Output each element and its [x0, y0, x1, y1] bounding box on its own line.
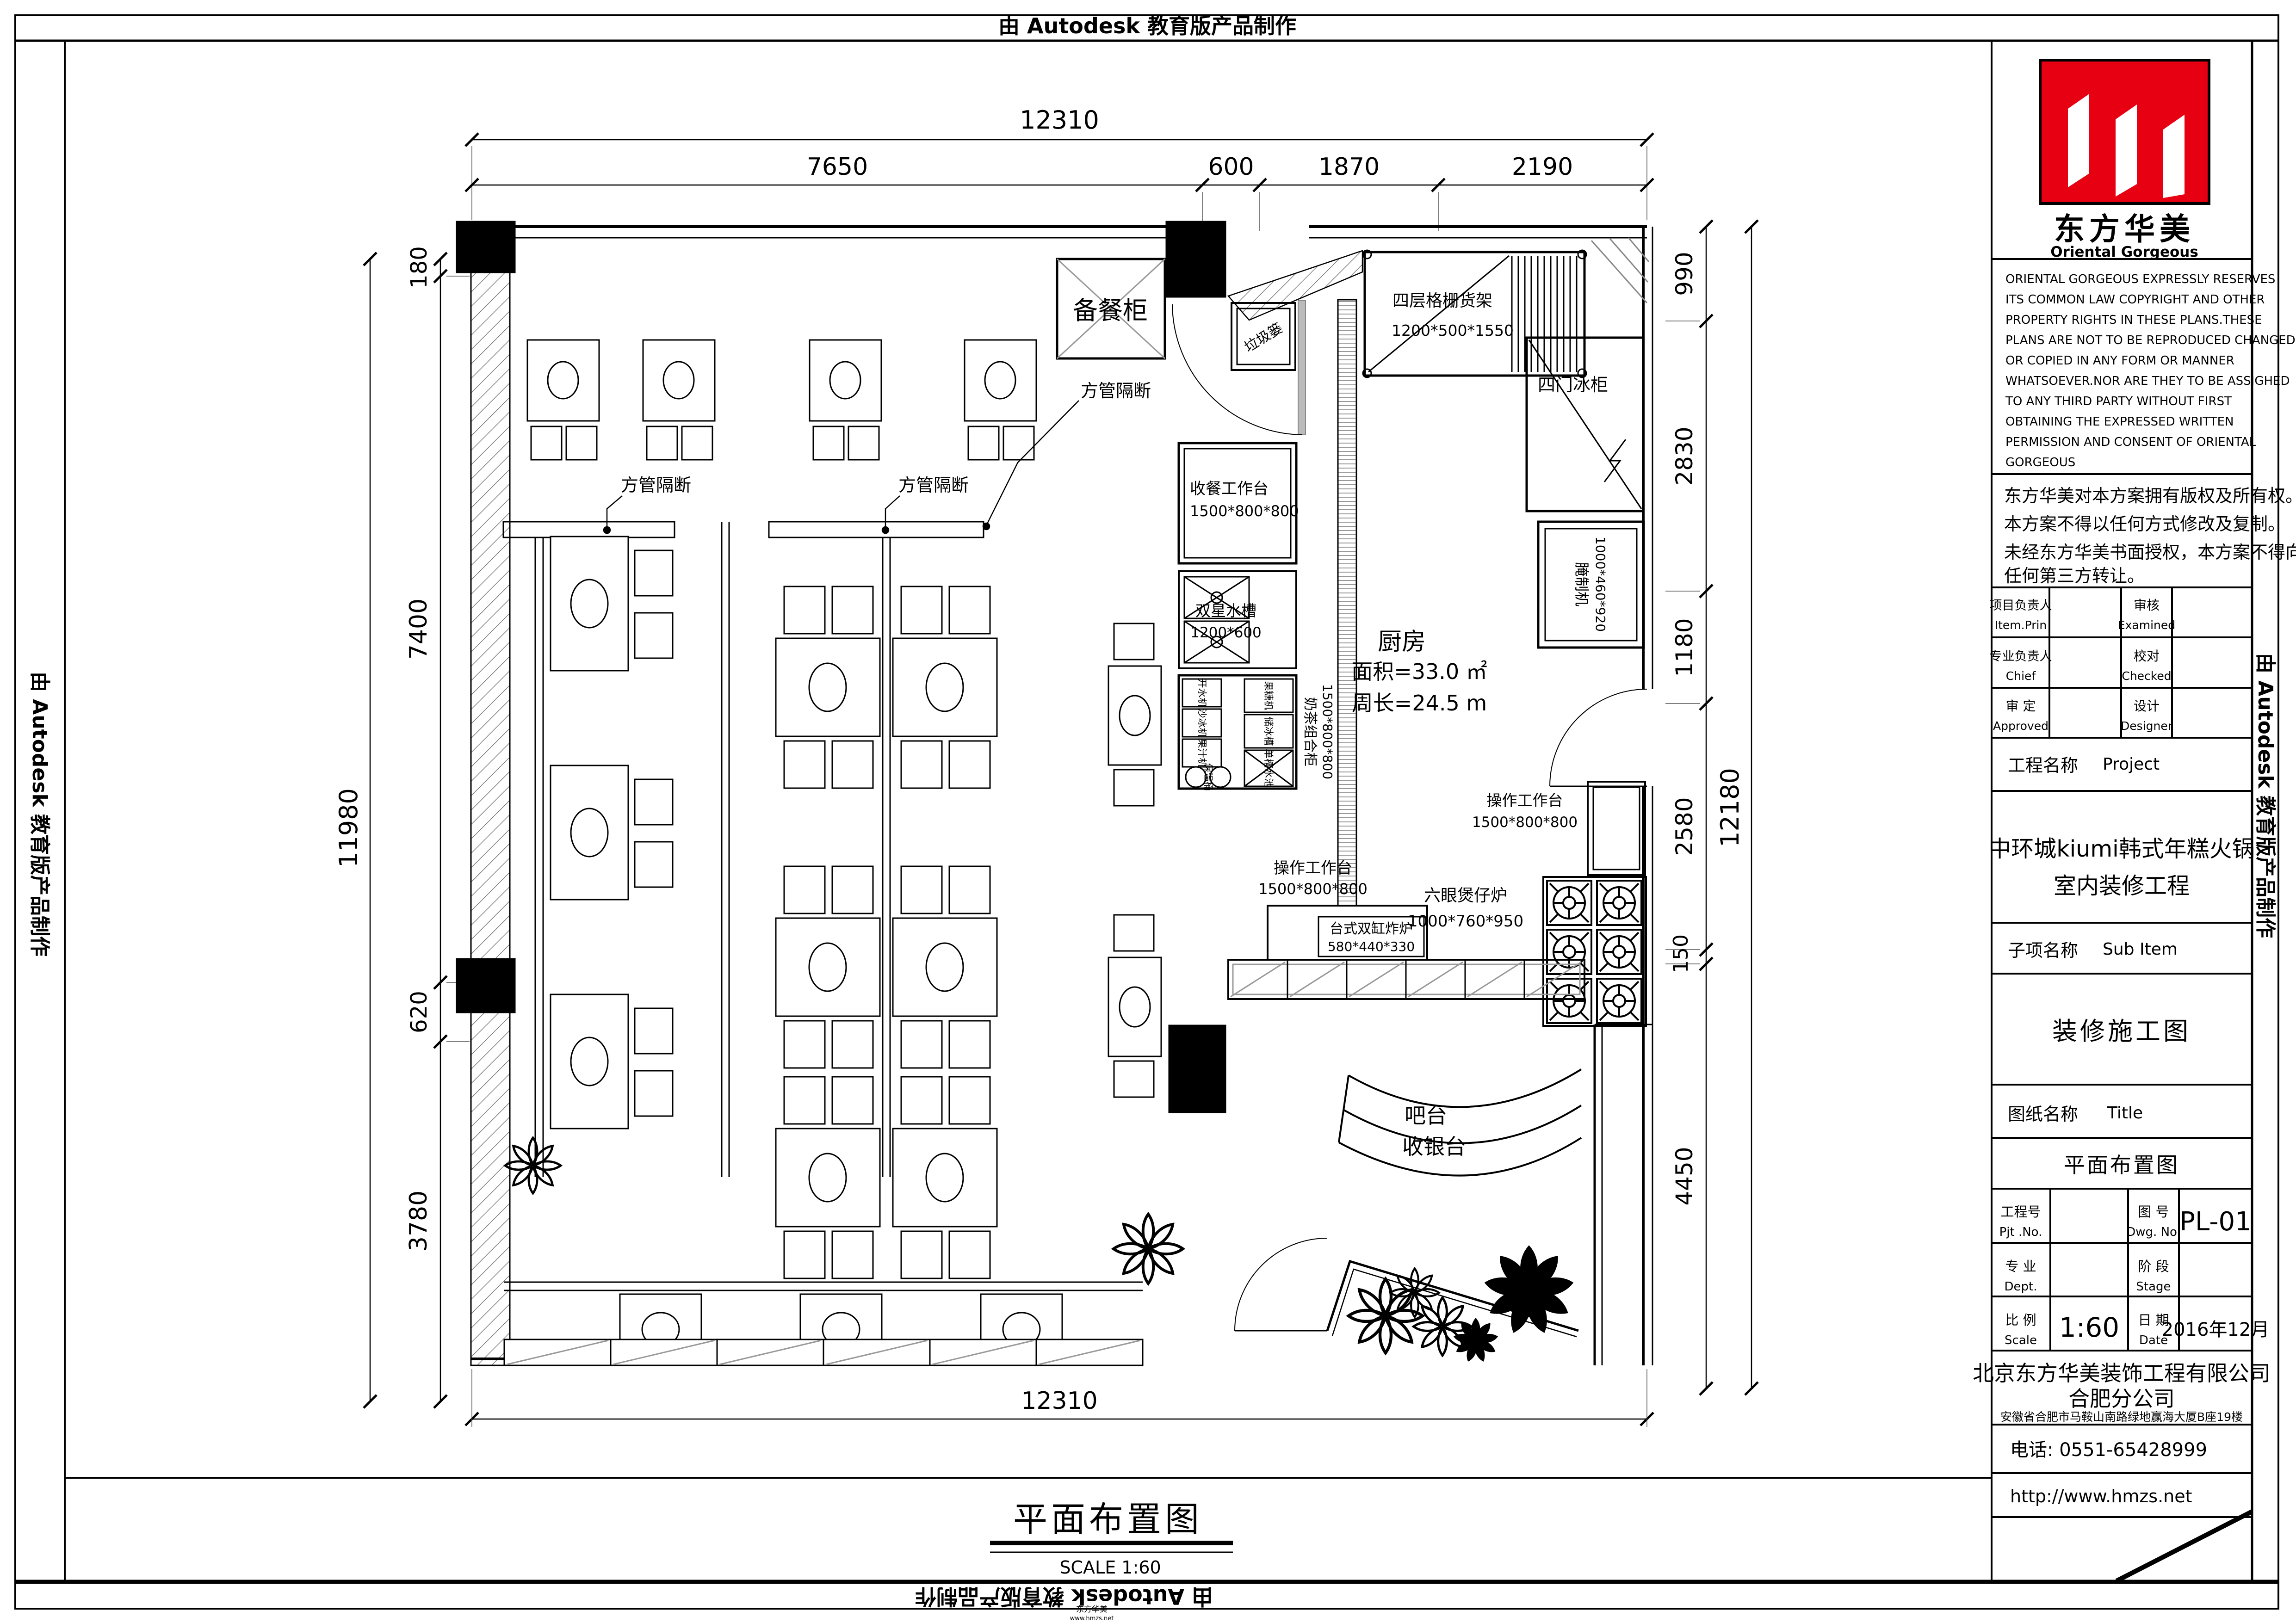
field-approved-en: Approved: [1993, 719, 2048, 733]
table-top-row: [527, 340, 1036, 460]
double-sink: [1179, 571, 1296, 668]
copyright-cn-line: 未经东方华美书面授权，本方案不得向: [2004, 542, 2296, 562]
scale-cn: 比 例: [2005, 1312, 2036, 1328]
pjt-en: Pjt .No.: [1999, 1225, 2042, 1239]
project-name-line1: 中环城kiumi韩式年糕火锅: [1988, 836, 2254, 862]
field-designer-en: Designer: [2121, 719, 2173, 733]
marinator: [1538, 522, 1644, 648]
label-stove: 六眼煲仔炉: [1424, 886, 1507, 905]
field-chief-en: Chief: [2006, 669, 2036, 683]
bar-counter: [1339, 1069, 1581, 1176]
project-label-en: Project: [2103, 755, 2160, 774]
project-name-line2: 室内装修工程: [2054, 873, 2190, 899]
field-chief-cn: 专业负责人: [1990, 649, 2052, 664]
label-collect-size: 1500*800*800: [1190, 502, 1299, 520]
dim-seg: 990: [1671, 252, 1698, 296]
banner-top: 由 Autodesk 教育版产品制作: [998, 13, 1296, 38]
dim-seg: 1870: [1318, 153, 1380, 181]
company-line1: 北京东方华美装饰工程有限公司: [1973, 1361, 2271, 1386]
drawing-sheet: 由 Autodesk 教育版产品制作 由 Autodesk 教育版产品制作 由 …: [0, 0, 2296, 1623]
plan-canvas: 由 Autodesk 教育版产品制作 由 Autodesk 教育版产品制作 由 …: [0, 0, 2296, 1623]
six-eye-stove: [1543, 877, 1646, 1026]
label-pantry: 备餐柜: [1073, 296, 1148, 325]
banner-bottom: 由 Autodesk 教育版产品制作: [915, 1584, 1213, 1609]
company-line2: 合肥分公司: [2068, 1386, 2175, 1411]
subitem-label-cn: 子项名称: [2008, 940, 2078, 961]
watermark-line1: 东方华美: [1076, 1605, 1108, 1614]
pjt-cn: 工程号: [2000, 1204, 2041, 1220]
label-shelf: 四层格栅货架: [1392, 291, 1492, 310]
copyright-en-line: ORIENTAL GORGEOUS EXPRESSLY RESERVES: [2005, 272, 2275, 286]
label-bar: 吧台: [1405, 1103, 1447, 1128]
field-checked-cn: 校对: [2134, 648, 2160, 664]
dim-seg: 3780: [405, 1191, 433, 1252]
field-examined-cn: 审核: [2134, 598, 2160, 613]
label-sink-size: 1200*600: [1190, 624, 1262, 641]
dim-seg: 180: [406, 246, 432, 289]
label-worktable-right-size: 1500*800*800: [1472, 814, 1578, 831]
scale-en: Scale: [2005, 1333, 2037, 1347]
logo-en: Oriental Gorgeous: [2050, 244, 2198, 260]
scale-value: 1:60: [2059, 1312, 2119, 1343]
number-grid: 工程号 Pjt .No. 图 号 Dwg. No. PL-01 专 业 Dept…: [1999, 1204, 2270, 1347]
edu-banners: 由 Autodesk 教育版产品制作 由 Autodesk 教育版产品制作 由 …: [28, 13, 2277, 1609]
dim-seg: 2580: [1671, 797, 1698, 856]
label-stove-size: 1000*760*950: [1408, 912, 1523, 931]
sheet-label-en: Title: [2107, 1104, 2143, 1123]
dimension-texts: 12310 7650 600 1870 2190 12310 11980 180…: [334, 105, 1745, 1415]
dim-left-total: 11980: [334, 788, 363, 868]
dept-cn: 专 业: [2005, 1259, 2036, 1274]
tables-center-col-b: [893, 586, 997, 1278]
label-unit-water-boiler: 开水机: [1196, 679, 1207, 708]
label-shelf-size: 1200*500*1550: [1392, 321, 1514, 339]
copyright-en-line: OBTAINING THE EXPRESSED WRITTEN: [2005, 415, 2234, 429]
copyright-cn-line: 任何第三方转让。: [2004, 566, 2145, 586]
label-fryer-size: 580*440*330: [1328, 939, 1415, 954]
field-designer-cn: 设计: [2134, 698, 2160, 714]
banner-right: 由 Autodesk 教育版产品制作: [2253, 653, 2277, 938]
copyright-en-line: ITS COMMON LAW COPYRIGHT AND OTHER: [2005, 293, 2265, 307]
copyright-en-line: OR COPIED IN ANY FORM OR MANNER: [2005, 354, 2234, 368]
label-unit-single-sink: 单槽水池: [1263, 749, 1274, 788]
label-unit-thermal: 保温桶: [1203, 763, 1214, 791]
company-logo: 东方华美 Oriental Gorgeous: [2040, 60, 2209, 260]
copyright-en-line: GORGEOUS: [2005, 456, 2075, 469]
label-marinator-size: 1000*460*920: [1593, 537, 1608, 632]
dwg-no: PL-01: [2179, 1207, 2251, 1237]
tables-center-col-a: [776, 586, 880, 1278]
dept-en: Dept.: [2005, 1280, 2037, 1294]
label-cashier: 收银台: [1402, 1134, 1466, 1159]
label-trash: 垃圾篓: [1242, 320, 1286, 356]
grid-shelf: [1363, 250, 1586, 377]
plan-labels: 备餐柜 垃圾篓 四层格栅货架 1200*500*1550 四门冰柜 腌制机 10…: [604, 291, 1608, 1159]
booth-seating: [504, 1282, 1143, 1365]
dim-seg: 2830: [1671, 426, 1698, 485]
label-milktea-size: 1500*800*800: [1320, 684, 1335, 779]
label-worktable-left-size: 1500*800*800: [1258, 880, 1368, 898]
date-value: 2016年12月: [2162, 1319, 2270, 1340]
banner-left: 由 Autodesk 教育版产品制作: [28, 672, 51, 957]
copyright-en-line: WHATSOEVER.NOR ARE THEY TO BE ASSIGHED: [2005, 374, 2290, 388]
tables-two-seat-col: [1108, 623, 1161, 1097]
caption-scale: SCALE 1:60: [1059, 1557, 1161, 1578]
personnel-grid: 项目负责人 Item.Prin 审核 Examined 专业负责人 Chief …: [1990, 598, 2176, 733]
dim-right-total: 12180: [1715, 768, 1745, 847]
field-item-prin-en: Item.Prin: [1995, 618, 2047, 632]
field-item-prin-cn: 项目负责人: [1990, 599, 2052, 613]
label-unit-fructose: 果糖机: [1263, 681, 1274, 710]
label-marinator: 腌制机: [1573, 562, 1590, 606]
dim-seg: 600: [1208, 153, 1254, 181]
construction-set: 装修施工图: [2052, 1017, 2191, 1046]
label-kitchen-area: 面积=33.0 ㎡: [1351, 659, 1487, 684]
worktable-right: [1588, 782, 1645, 875]
dwg-en: Dwg. No.: [2126, 1225, 2180, 1239]
company-website: http://www.hmzs.net: [2010, 1486, 2192, 1506]
pass-counter: [1228, 960, 1584, 999]
label-partition-2: 方管隔断: [898, 475, 969, 495]
subitem-label-en: Sub Item: [2103, 940, 2178, 959]
company-address: 安徽省合肥市马鞍山南路绿地赢海大厦B座19楼: [2000, 1410, 2243, 1424]
label-fryer: 台式双缸炸炉: [1330, 921, 1413, 937]
dim-seg: 150: [1669, 934, 1693, 973]
field-approved-cn: 审 定: [2006, 698, 2036, 714]
copyright-en-line: PERMISSION AND CONSENT OF ORIENTAL: [2005, 435, 2256, 449]
caption-title: 平面布置图: [1013, 1500, 1203, 1539]
stage-en: Stage: [2136, 1280, 2171, 1294]
copyright-en-line: PROPERTY RIGHTS IN THESE PLANS.THESE: [2005, 313, 2262, 327]
label-unit-ice-blender: 沙冰机: [1196, 709, 1207, 738]
dim-top-total: 12310: [1020, 105, 1099, 135]
copyright-cn-line: 本方案不得以任何方式修改及复制。: [2004, 514, 2285, 534]
project-label-cn: 工程名称: [2008, 755, 2078, 776]
field-examined-en: Examined: [2118, 618, 2175, 632]
label-partition-3: 方管隔断: [1081, 381, 1151, 401]
dim-seg: 620: [406, 991, 432, 1033]
watermark-line2: www.hmzs.net: [1070, 1615, 1114, 1622]
field-checked-en: Checked: [2122, 669, 2171, 683]
label-milktea: 奶茶组合柜: [1302, 697, 1318, 766]
title-block: 东方华美 Oriental Gorgeous ORIENTAL GORGEOUS…: [1973, 41, 2296, 1582]
dwg-cn: 图 号: [2138, 1204, 2169, 1220]
label-kitchen: 厨房: [1378, 628, 1426, 656]
company-phone: 电话: 0551-65428999: [2010, 1439, 2207, 1461]
copyright-en-line: PLANS ARE NOT TO BE REPRODUCED CHANGED: [2005, 333, 2296, 347]
sheet-name: 平面布置图: [2064, 1153, 2179, 1178]
logo-cn: 东方华美: [2054, 211, 2195, 247]
label-unit-ice-bin: 储冰槽: [1263, 717, 1274, 746]
label-fridge: 四门冰柜: [1538, 375, 1608, 395]
company-section: 北京东方华美装饰工程有限公司 合肥分公司 安徽省合肥市马鞍山南路绿地赢海大厦B座…: [1973, 1361, 2271, 1506]
label-sink: 双星水槽: [1195, 602, 1256, 620]
copyright-en-line: TO ANY THIRD PARTY WITHOUT FIRST: [2005, 395, 2232, 408]
label-worktable-right: 操作工作台: [1487, 791, 1563, 809]
dim-seg: 1180: [1671, 618, 1698, 677]
label-worktable-left: 操作工作台: [1274, 859, 1352, 877]
label-partition-1: 方管隔断: [621, 475, 691, 495]
dim-bottom-total: 12310: [1021, 1387, 1097, 1415]
copyright-cn-line: 东方华美对本方案拥有版权及所有权。: [2004, 486, 2296, 506]
stage-cn: 阶 段: [2138, 1259, 2169, 1274]
dim-seg: 4450: [1671, 1147, 1698, 1205]
project-section: 工程名称 Project 中环城kiumi韩式年糕火锅 室内装修工程 子项名称 …: [1988, 755, 2254, 1178]
sheet-label-cn: 图纸名称: [2008, 1104, 2078, 1124]
dim-seg: 7650: [807, 153, 868, 181]
dim-seg: 7400: [405, 599, 433, 660]
bench-tables-left: [551, 537, 673, 1129]
label-collect: 收餐工作台: [1190, 480, 1269, 498]
label-kitchen-perimeter: 周长=24.5 m: [1352, 691, 1487, 716]
dim-seg: 2190: [1512, 153, 1573, 181]
